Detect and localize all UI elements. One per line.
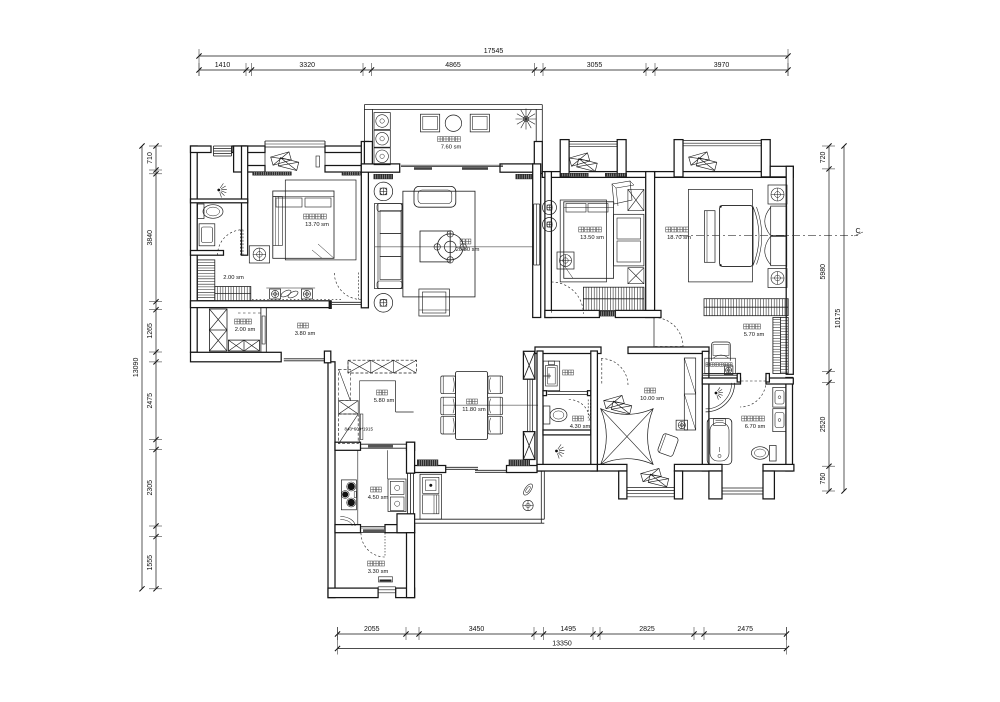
svg-text:710: 710: [147, 152, 154, 164]
svg-text:840*600*1915: 840*600*1915: [345, 427, 374, 432]
svg-text:17545: 17545: [484, 48, 504, 55]
svg-text:3970: 3970: [714, 62, 730, 69]
svg-text:10.00 sm: 10.00 sm: [640, 396, 664, 402]
svg-text:1265: 1265: [147, 323, 154, 339]
svg-text:3840: 3840: [147, 230, 154, 246]
svg-text:3320: 3320: [299, 62, 315, 69]
svg-text:3.80 sm: 3.80 sm: [295, 331, 316, 337]
svg-text:13.50 sm: 13.50 sm: [580, 235, 604, 241]
svg-text:750: 750: [820, 473, 827, 485]
svg-text:11.80 sm: 11.80 sm: [462, 407, 486, 413]
svg-text:2.00 sm: 2.00 sm: [235, 327, 256, 333]
svg-text:5.80 sm: 5.80 sm: [374, 398, 395, 404]
svg-text:13.70 sm: 13.70 sm: [305, 222, 329, 228]
svg-text:1495: 1495: [560, 626, 576, 633]
svg-text:5980: 5980: [820, 264, 827, 280]
svg-text:2475: 2475: [147, 393, 154, 409]
svg-text:6.70 sm: 6.70 sm: [745, 424, 766, 430]
svg-text:4.50 sm: 4.50 sm: [368, 495, 389, 501]
svg-text:2520: 2520: [820, 416, 827, 432]
svg-text:3055: 3055: [587, 62, 603, 69]
svg-text:13090: 13090: [133, 358, 140, 378]
svg-text:2305: 2305: [147, 480, 154, 496]
svg-text:18.70 sm: 18.70 sm: [667, 235, 691, 241]
svg-text:2825: 2825: [639, 626, 655, 633]
svg-text:13350: 13350: [552, 641, 572, 648]
svg-text:2.00 sm: 2.00 sm: [223, 275, 244, 281]
svg-text:20.50 sm: 20.50 sm: [456, 247, 480, 253]
svg-text:5.70 sm: 5.70 sm: [744, 332, 765, 338]
svg-text:3.30 sm: 3.30 sm: [368, 569, 389, 575]
svg-text:720: 720: [820, 152, 827, 164]
svg-text:2055: 2055: [364, 626, 380, 633]
svg-text:2475: 2475: [737, 626, 753, 633]
svg-text:7.60 sm: 7.60 sm: [441, 145, 462, 151]
svg-text:10175: 10175: [835, 309, 842, 329]
svg-text:4.30 sm: 4.30 sm: [570, 424, 591, 430]
svg-text:1410: 1410: [215, 62, 231, 69]
svg-text:4865: 4865: [445, 62, 461, 69]
svg-text:3450: 3450: [469, 626, 485, 633]
svg-text:1555: 1555: [147, 555, 154, 571]
